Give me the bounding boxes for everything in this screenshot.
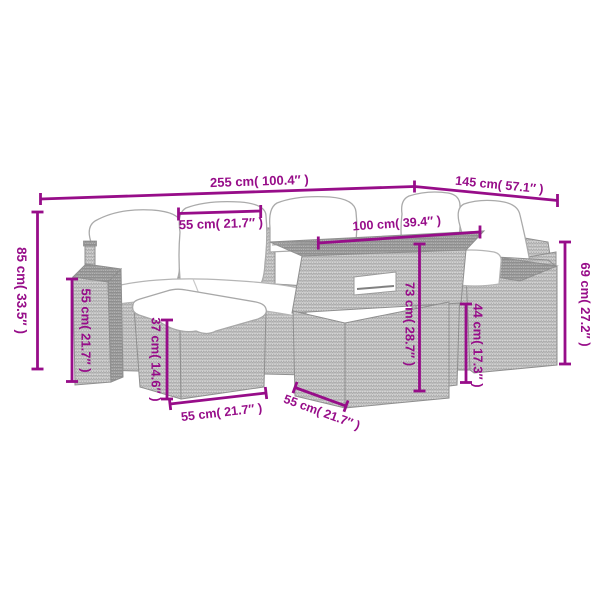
svg-text:37 cm( 14.6″ ): 37 cm( 14.6″ )	[149, 317, 164, 401]
svg-text:73 cm( 28.7″ ): 73 cm( 28.7″ )	[403, 282, 418, 366]
svg-text:55 cm( 21.7″ ): 55 cm( 21.7″ )	[79, 288, 94, 372]
svg-text:85 cm( 33.5″ ): 85 cm( 33.5″ )	[14, 247, 29, 334]
svg-text:69 cm( 27.2″ ): 69 cm( 27.2″ )	[578, 262, 593, 346]
svg-text:44 cm( 17.3″ ): 44 cm( 17.3″ )	[471, 303, 486, 387]
svg-text:55 cm( 21.7″ ): 55 cm( 21.7″ )	[179, 215, 264, 232]
